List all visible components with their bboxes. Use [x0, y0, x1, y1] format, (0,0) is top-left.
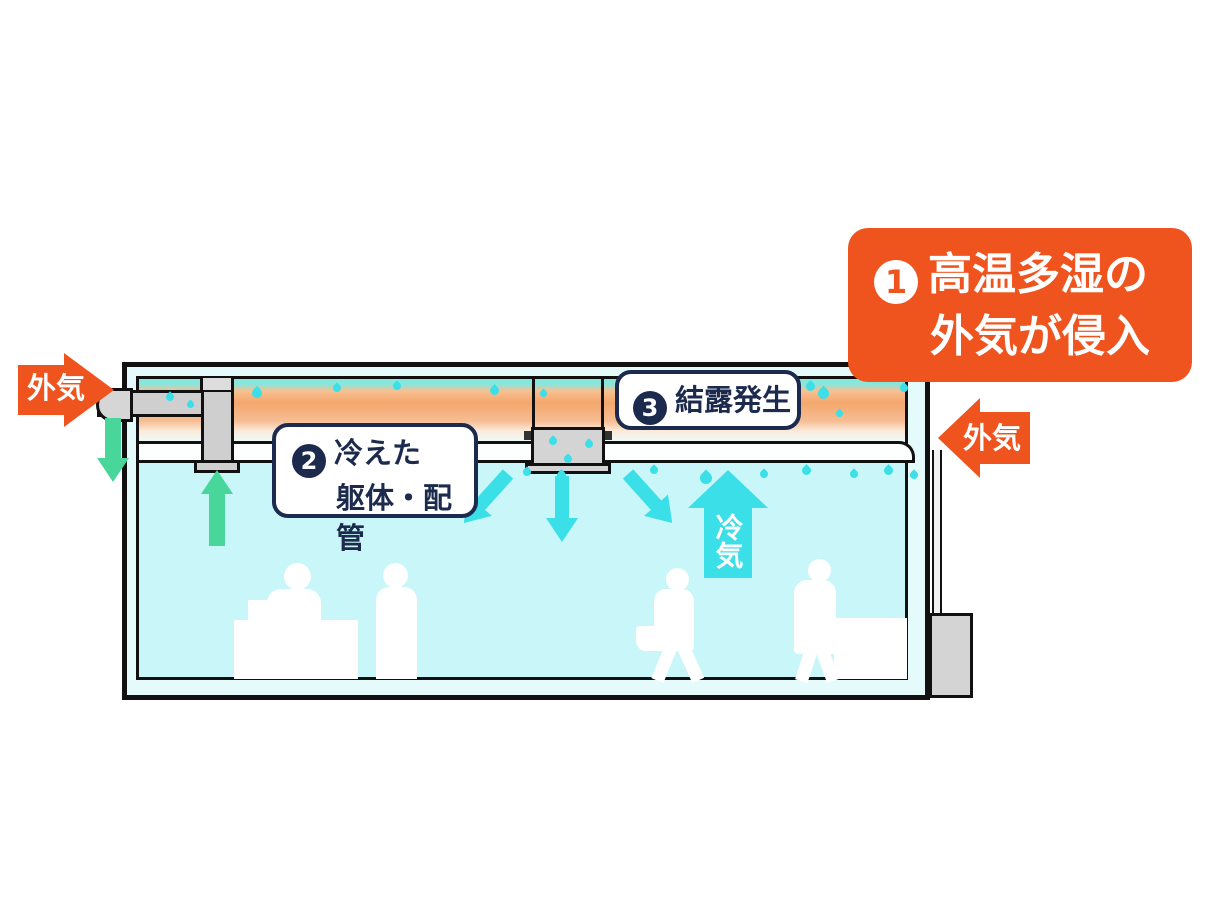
exhaust-down-arrow-head	[97, 458, 129, 482]
outside-air-arrow-left: 外気	[18, 353, 116, 427]
label-3-number-icon: 3	[633, 391, 667, 425]
cold-air-label: 冷気	[704, 502, 752, 580]
ac-unit-hanger	[532, 379, 604, 431]
ac-unit-diffuser	[525, 463, 611, 474]
callout-1-humid-air-intrusion: 1高温多湿の 外気が侵入	[848, 228, 1192, 382]
checkout-counter	[234, 620, 358, 679]
label-2-line2: 躯体・配管	[336, 478, 474, 558]
label-3-condensation: 3結露発生	[615, 370, 801, 430]
label-3-text: 結露発生	[675, 383, 791, 417]
label-2-line1: 冷えた	[334, 436, 421, 470]
label-2-number-icon: 2	[292, 444, 326, 478]
outdoor-unit	[929, 613, 973, 698]
suspended-ceiling-duct-right	[601, 441, 915, 463]
shopper1-head-silhouette	[666, 568, 689, 591]
exhaust-up-arrow-head	[201, 470, 233, 494]
cash-register	[248, 600, 287, 621]
outside-air-label-right: 外気	[963, 424, 1021, 453]
shopping-basket	[636, 626, 667, 651]
ac-unit-bracket-right	[605, 431, 612, 440]
cashier-head-silhouette	[284, 563, 311, 590]
cold-supply-arrow-center	[546, 476, 578, 542]
outside-air-arrow-right: 外気	[938, 398, 1032, 478]
callout-1-line2: 外気が侵入	[930, 306, 1192, 368]
customer-body-silhouette	[376, 587, 417, 679]
exhaust-duct-vertical	[201, 392, 234, 470]
ac-unit-bracket-left	[524, 431, 531, 440]
shopper2-head-silhouette	[808, 559, 831, 582]
label-2-cold-structure: 2冷えた 躯体・配管	[272, 423, 478, 518]
shopper2-body-silhouette	[794, 580, 836, 654]
outside-air-label-left: 外気	[27, 374, 85, 403]
customer-head-silhouette	[383, 563, 408, 588]
callout-1-line1: 高温多湿の	[928, 249, 1148, 300]
store-shelf	[834, 618, 907, 679]
diagram-canvas: 冷気 外気 外気 2冷えた 躯体・配管 3結露発生 1高温多湿の 外気が侵入	[0, 0, 1231, 923]
callout-1-number-icon: 1	[874, 260, 918, 304]
exhaust-up-arrow	[209, 492, 225, 546]
